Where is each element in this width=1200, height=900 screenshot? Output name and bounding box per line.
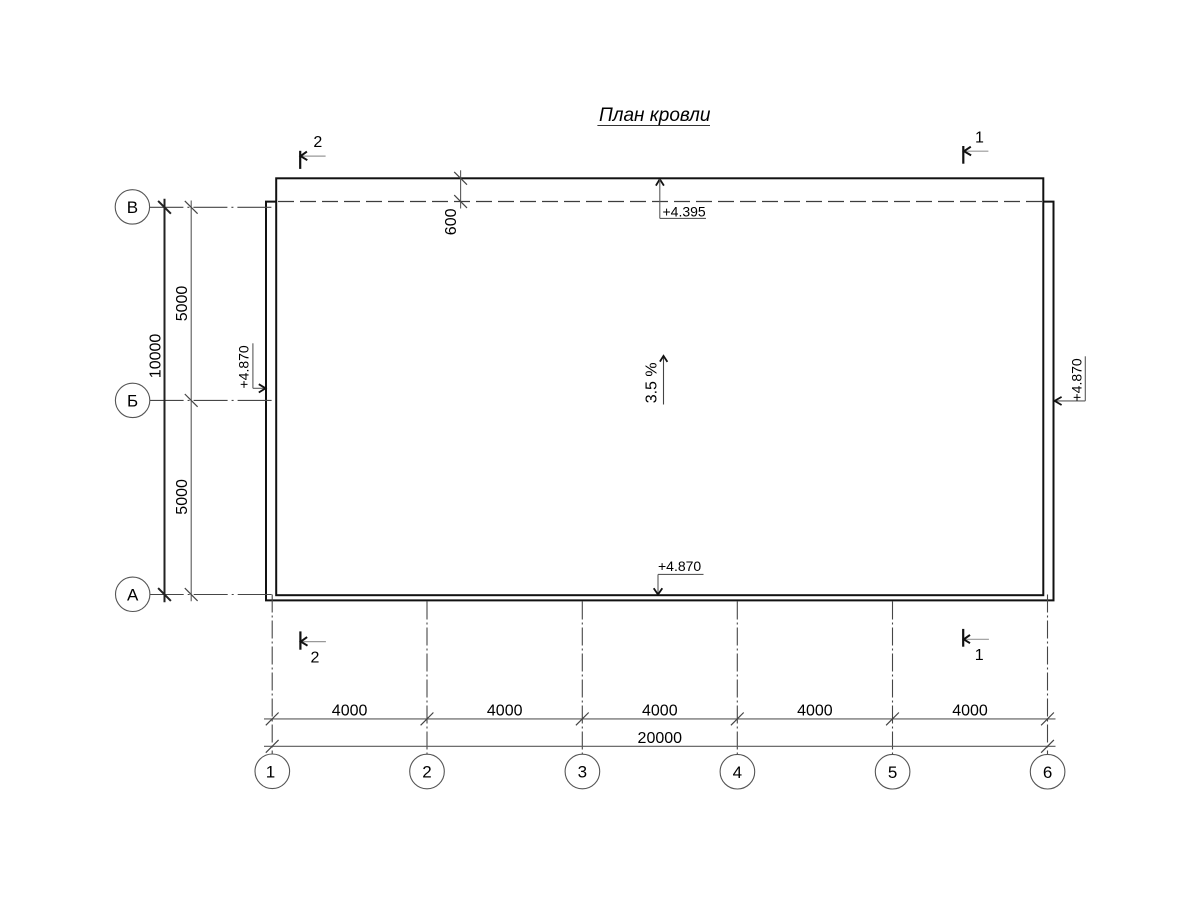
svg-text:1: 1 bbox=[975, 129, 984, 146]
svg-text:5000: 5000 bbox=[174, 286, 191, 322]
svg-text:4000: 4000 bbox=[332, 702, 368, 719]
svg-text:600: 600 bbox=[443, 208, 460, 235]
svg-text:2: 2 bbox=[313, 134, 322, 151]
svg-text:В: В bbox=[127, 198, 138, 217]
svg-text:+4.395: +4.395 bbox=[663, 203, 706, 219]
svg-text:+4.870: +4.870 bbox=[658, 558, 701, 574]
svg-text:20000: 20000 bbox=[638, 730, 683, 747]
svg-text:4: 4 bbox=[733, 763, 742, 782]
svg-text:4000: 4000 bbox=[642, 702, 678, 719]
svg-text:+4.870: +4.870 bbox=[1069, 358, 1085, 401]
svg-text:4000: 4000 bbox=[952, 702, 988, 719]
svg-text:3: 3 bbox=[578, 763, 587, 782]
svg-text:5: 5 bbox=[888, 763, 897, 782]
svg-text:4000: 4000 bbox=[487, 702, 523, 719]
svg-text:6: 6 bbox=[1043, 763, 1052, 782]
svg-text:2: 2 bbox=[310, 650, 319, 667]
svg-text:+4.870: +4.870 bbox=[236, 345, 252, 388]
svg-text:2: 2 bbox=[422, 763, 431, 782]
svg-text:4000: 4000 bbox=[797, 702, 833, 719]
svg-text:Б: Б bbox=[127, 392, 138, 411]
svg-text:10000: 10000 bbox=[147, 334, 164, 379]
svg-text:1: 1 bbox=[975, 647, 984, 664]
svg-text:А: А bbox=[127, 586, 139, 605]
svg-text:1: 1 bbox=[266, 763, 275, 782]
svg-text:3.5 %: 3.5 % bbox=[643, 362, 660, 403]
svg-text:План кровли: План кровли bbox=[599, 105, 711, 126]
svg-text:5000: 5000 bbox=[174, 479, 191, 515]
